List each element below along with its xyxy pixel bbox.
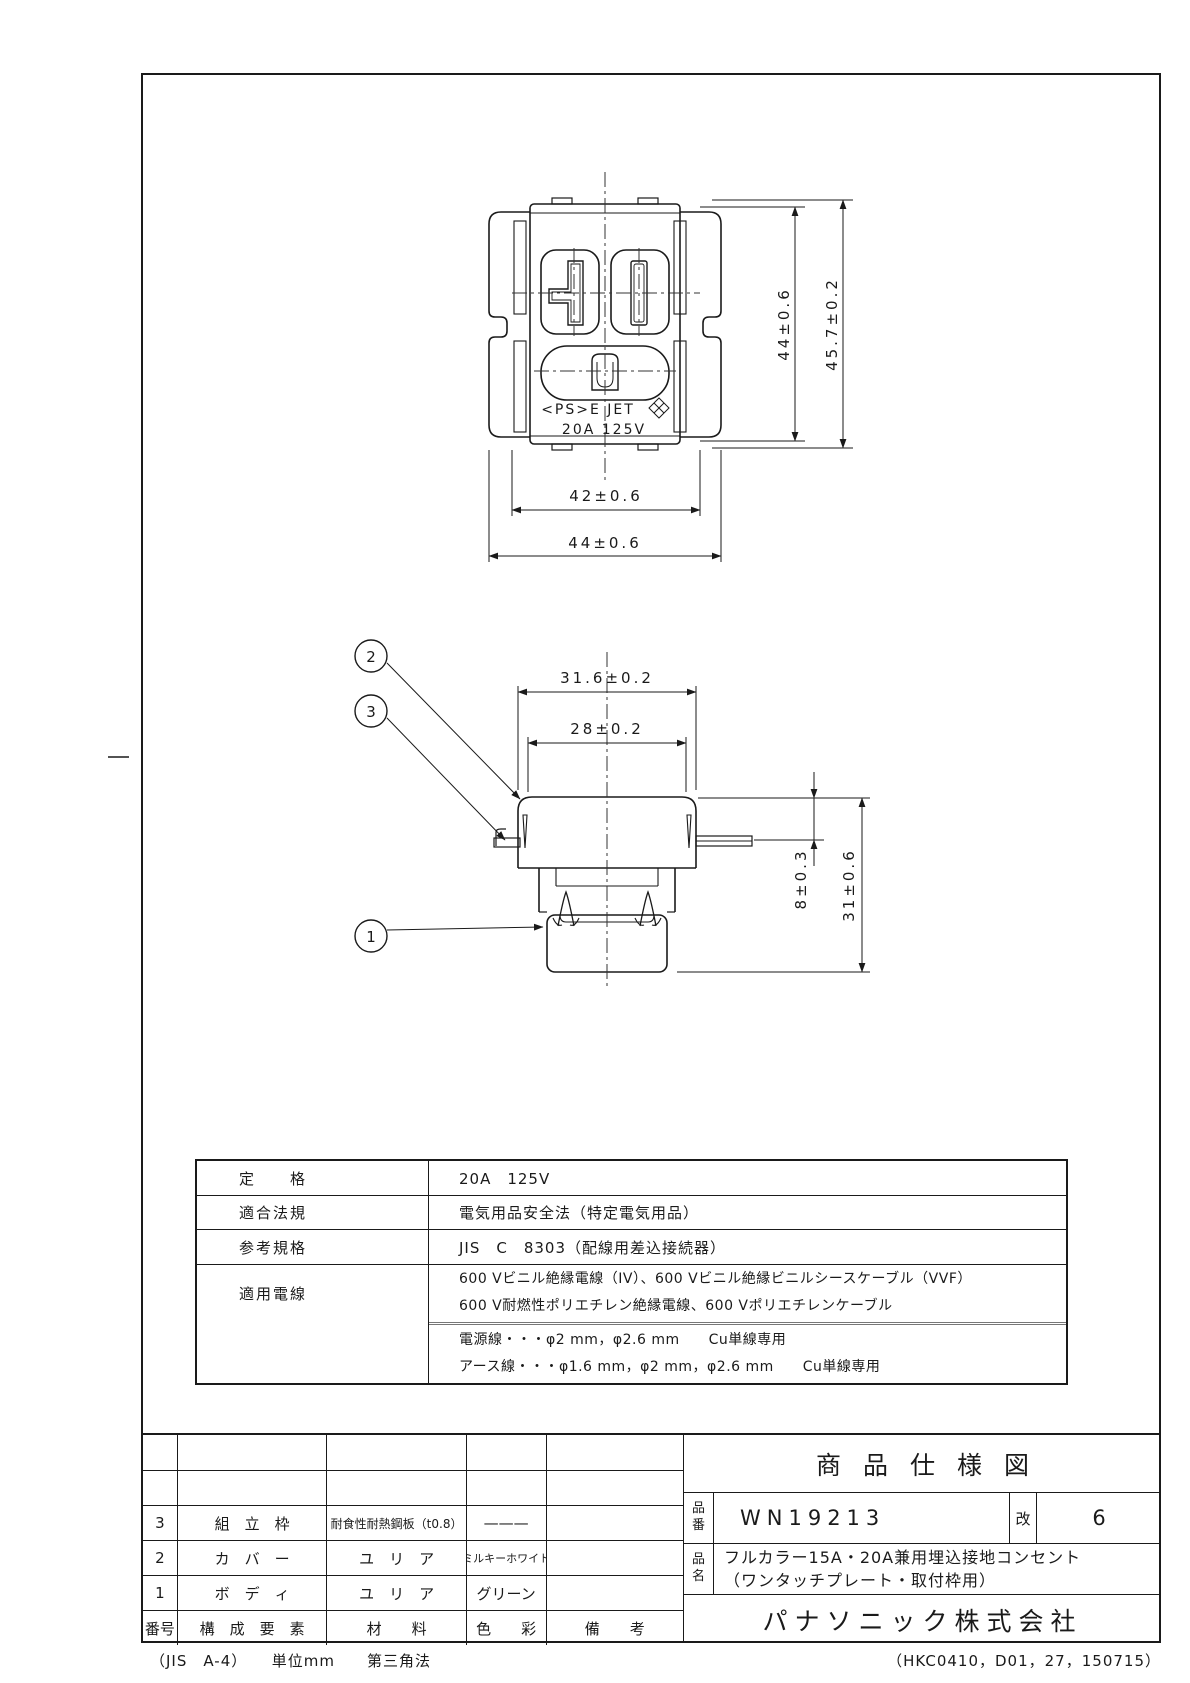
callout-2-number: 2	[366, 648, 376, 666]
front-left-rail	[489, 212, 530, 437]
part-material: ユ リ ア	[327, 1576, 466, 1610]
parts-table: 3 組 立 枠 耐食性耐熱鋼板（t0.8） ——— 2 カ バ ー ユ リ ア …	[141, 1433, 683, 1643]
spec-cables-line2: 600 V耐燃性ポリエチレン絶縁電線、600 Vポリエチレンケーブル	[459, 1293, 1066, 1320]
frame-tab	[638, 444, 658, 450]
part-color: ミルキーホワイト	[467, 1541, 547, 1575]
product-name-line1: フルカラー15A・20A兼用埋込接地コンセント	[724, 1546, 1161, 1569]
spec-label-standard: 参考規格	[197, 1230, 429, 1264]
product-name-row: 品名 フルカラー15A・20A兼用埋込接地コンセント （ワンタッチプレート・取付…	[684, 1543, 1161, 1594]
spec-cables: 600 Vビニル絶縁電線（IV）、600 Vビニル絶縁ビニルシースケーブル（VV…	[429, 1265, 1066, 1322]
front-dimensions: 44±0.6 45.7±0.2 42±0.6 44±0.6	[489, 200, 853, 562]
live-pod	[611, 250, 669, 334]
spec-cables-line1: 600 Vビニル絶縁電線（IV）、600 Vビニル絶縁ビニルシースケーブル（VV…	[459, 1266, 1066, 1293]
parts-header-material: 材 料	[327, 1611, 466, 1645]
document-title: 商品仕様図	[684, 1435, 1161, 1492]
part-no: 2	[143, 1541, 178, 1575]
side-dim-cover-width-inner-label: 28±0.2	[570, 720, 644, 738]
side-cover	[518, 797, 696, 868]
callout-3-number: 3	[366, 703, 376, 721]
spec-value-rating: 20A 125V	[429, 1161, 1066, 1195]
front-marking-line1: <PS>E JET	[541, 402, 635, 418]
callout-1-number: 1	[366, 928, 376, 946]
side-dim-total-depth-label: 31±0.6	[840, 848, 858, 922]
part-material: 耐食性耐熱鋼板（t0.8）	[327, 1506, 466, 1540]
claw-left	[558, 892, 574, 926]
drawing-canvas: <PS>E JET 20A 125V 44±0.6 45.7±0.2 42±0.…	[0, 0, 1190, 1683]
part-component: ボ デ ィ	[178, 1576, 327, 1610]
part-color: グリーン	[467, 1576, 547, 1610]
jet-mark-icon	[649, 398, 669, 418]
footer-sheet-info: （JIS A-4） 単位mm 第三角法	[150, 1650, 431, 1671]
part-note	[547, 1541, 683, 1575]
side-view	[494, 797, 752, 972]
parts-row-empty-2	[143, 1470, 683, 1505]
part-number-row: 品番 WN19213 改 6	[684, 1492, 1161, 1543]
parts-row-2: 2 カ バ ー ユ リ ア ミルキーホワイト	[143, 1540, 683, 1575]
spec-label-rating: 定 格	[197, 1161, 429, 1195]
parts-header-component: 構 成 要 素	[178, 1611, 327, 1645]
title-block: 商品仕様図 品番 WN19213 改 6 品名 フルカラー15A・20A兼用埋込…	[683, 1433, 1161, 1643]
parts-header-note: 備 考	[547, 1611, 683, 1645]
frame-flange-left	[494, 838, 520, 847]
frame-tab	[638, 198, 658, 204]
part-number-label: 品番	[684, 1493, 714, 1543]
parts-row-3: 3 組 立 枠 耐食性耐熱鋼板（t0.8） ———	[143, 1505, 683, 1540]
footer-document-code: （HKC0410，D01，27，150715）	[887, 1650, 1161, 1671]
product-name-label: 品名	[684, 1544, 714, 1594]
revision-number: 6	[1037, 1493, 1161, 1543]
parts-header-no: 番号	[143, 1611, 178, 1645]
spec-label-law: 適合法規	[197, 1196, 429, 1229]
product-name-line2: （ワンタッチプレート・取付枠用）	[724, 1569, 1161, 1592]
part-color: ———	[467, 1506, 547, 1540]
spec-label-wires: 適用電線	[197, 1265, 429, 1383]
front-dim-body-width-label: 42±0.6	[569, 487, 643, 505]
frame-tab	[552, 198, 572, 204]
claw-right	[640, 892, 656, 926]
front-dim-body-height-label: 44±0.6	[775, 287, 793, 361]
spec-wire-sizes: 電源線・・・φ2 mm，φ2.6 mm Cu単線専用 アース線・・・φ1.6 m…	[429, 1322, 1066, 1383]
part-no: 1	[143, 1576, 178, 1610]
front-dim-frame-width-label: 44±0.6	[568, 534, 642, 552]
parts-header-row: 番号 構 成 要 素 材 料 色 彩 備 考	[143, 1610, 683, 1645]
callouts: 2 3 1	[355, 640, 543, 952]
front-dim-frame-height-label: 45.7±0.2	[823, 277, 841, 371]
part-component: カ バ ー	[178, 1541, 327, 1575]
spec-row-standard: 参考規格 JIS C 8303（配線用差込接続器）	[197, 1229, 1066, 1264]
spec-wires-line1: 電源線・・・φ2 mm，φ2.6 mm Cu単線専用	[459, 1327, 1066, 1354]
spec-value-standard: JIS C 8303（配線用差込接続器）	[429, 1230, 1066, 1264]
part-note	[547, 1576, 683, 1610]
side-dim-cover-width-outer-label: 31.6±0.2	[560, 669, 654, 687]
revision-label: 改	[1009, 1493, 1037, 1543]
frame-tab	[552, 444, 572, 450]
part-material: ユ リ ア	[327, 1541, 466, 1575]
spec-table: 定 格 20A 125V 適合法規 電気用品安全法（特定電気用品） 参考規格 J…	[195, 1159, 1068, 1385]
side-dim-cover-height-label: 8±0.3	[792, 849, 810, 910]
spec-row-law: 適合法規 電気用品安全法（特定電気用品）	[197, 1195, 1066, 1229]
parts-row-empty-1	[143, 1435, 683, 1470]
parts-header-color: 色 彩	[467, 1611, 547, 1645]
side-dimensions: 31.6±0.2 28±0.2 8±0.3 31±0.6	[518, 669, 870, 972]
spec-wires-line2: アース線・・・φ1.6 mm，φ2 mm，φ2.6 mm Cu単線専用	[459, 1354, 1066, 1381]
part-number: WN19213	[714, 1493, 1009, 1543]
part-note	[547, 1506, 683, 1540]
front-marking-line2: 20A 125V	[562, 422, 646, 438]
company-name: パナソニック株式会社	[684, 1594, 1161, 1645]
spec-value-law: 電気用品安全法（特定電気用品）	[429, 1196, 1066, 1229]
parts-row-1: 1 ボ デ ィ ユ リ ア グリーン	[143, 1575, 683, 1610]
part-no: 3	[143, 1506, 178, 1540]
spec-row-wires: 適用電線 600 Vビニル絶縁電線（IV）、600 Vビニル絶縁ビニルシースケー…	[197, 1264, 1066, 1383]
part-component: 組 立 枠	[178, 1506, 327, 1540]
spec-row-rating: 定 格 20A 125V	[197, 1161, 1066, 1195]
